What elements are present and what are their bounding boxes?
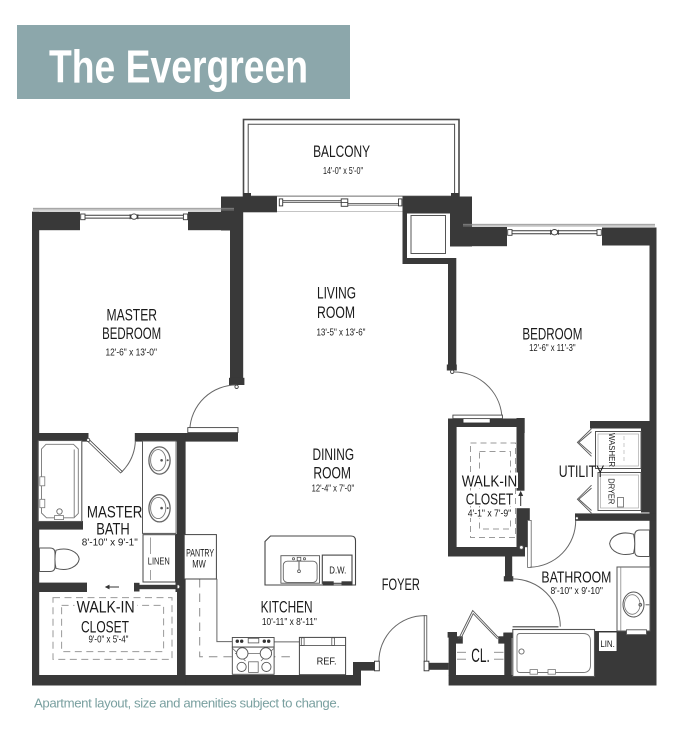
svg-text:D.W.: D.W.	[329, 566, 346, 577]
svg-text:WALK-IN: WALK-IN	[462, 474, 518, 491]
svg-text:13'-5" x 13'-6": 13'-5" x 13'-6"	[317, 326, 366, 338]
svg-text:BEDROOM: BEDROOM	[102, 324, 161, 343]
svg-text:LIN.: LIN.	[600, 639, 615, 650]
svg-text:BATH: BATH	[96, 519, 130, 538]
svg-text:14'-0" x 5'-0": 14'-0" x 5'-0"	[323, 165, 363, 177]
svg-text:ROOM: ROOM	[313, 464, 351, 483]
svg-text:LIVING: LIVING	[317, 284, 356, 303]
svg-text:BALCONY: BALCONY	[313, 142, 370, 161]
svg-text:12'-4" x 7'-0": 12'-4" x 7'-0"	[312, 483, 355, 495]
svg-text:KITCHEN: KITCHEN	[261, 597, 313, 616]
svg-text:ROOM: ROOM	[317, 303, 355, 322]
svg-text:Apartment layout, size and ame: Apartment layout, size and amenities sub…	[34, 696, 340, 711]
svg-text:9'-0" x 5'-4": 9'-0" x 5'-4"	[89, 633, 129, 645]
svg-text:LINEN: LINEN	[148, 557, 170, 568]
svg-text:CLOSET: CLOSET	[466, 492, 514, 509]
svg-text:The Evergreen: The Evergreen	[49, 41, 308, 93]
svg-text:WASHER: WASHER	[607, 433, 616, 467]
svg-text:8'-10" x 9'-10": 8'-10" x 9'-10"	[550, 585, 603, 597]
svg-text:4'-1" x 7'-9": 4'-1" x 7'-9"	[468, 507, 512, 519]
svg-text:FOYER: FOYER	[382, 575, 420, 594]
svg-text:DRYER: DRYER	[606, 478, 615, 504]
svg-text:MW: MW	[192, 558, 206, 570]
svg-text:BEDROOM: BEDROOM	[522, 325, 582, 344]
svg-text:MASTER: MASTER	[107, 306, 158, 325]
svg-text:WALK-IN: WALK-IN	[77, 598, 135, 617]
svg-text:REF.: REF.	[317, 657, 337, 668]
svg-text:UTILITY: UTILITY	[559, 462, 605, 481]
svg-text:12'-6" x 13'-0": 12'-6" x 13'-0"	[105, 347, 157, 359]
svg-text:10'-11" x 8'-11": 10'-11" x 8'-11"	[262, 616, 317, 628]
svg-text:CL.: CL.	[471, 646, 490, 667]
svg-text:8'-10" x 9'-1": 8'-10" x 9'-1"	[82, 537, 138, 549]
svg-text:12'-6" x 11'-3": 12'-6" x 11'-3"	[529, 342, 576, 354]
svg-text:DINING: DINING	[313, 445, 355, 464]
